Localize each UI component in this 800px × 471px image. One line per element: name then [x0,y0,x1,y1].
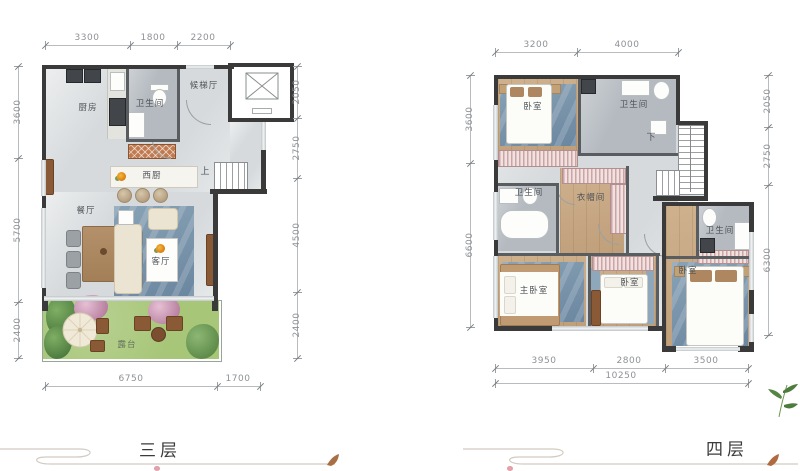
partition [556,183,559,253]
dim-label: 2050 [292,70,302,114]
room-label-master-bedroom: 主卧室 [512,286,556,297]
shower-column [581,79,596,94]
washer [700,238,715,253]
wall [749,202,754,232]
partition [578,153,678,156]
floor4-title: 四层 [687,435,767,460]
bath-vanity [621,80,650,96]
sofa [114,224,142,294]
dim-label: 2750 [763,134,773,178]
blossom-decoration [507,466,513,471]
elevator-wall [228,63,294,67]
window [493,105,498,160]
room-label-bathroom-top: 卫生间 [612,100,656,111]
room-label-bedroom-top: 卧室 [511,102,555,113]
dim-label: 3200 [514,40,558,50]
wall [704,121,708,201]
dim-label: 3300 [65,33,109,43]
room-label-bedroom-mid: 卧室 [608,278,652,289]
dim-label: 10250 [599,371,643,381]
flower-icon [117,172,126,181]
pillow [510,87,524,97]
wardrobe [592,256,654,271]
dim-label: 2750 [292,126,302,170]
dim-label: 4000 [605,40,649,50]
sideboard [45,159,54,195]
lounge-chair [96,318,109,334]
room-label-kitchen: 厨房 [66,103,110,114]
wall [738,346,754,352]
chair [66,272,81,289]
patio-chair [134,316,151,331]
window [41,160,46,196]
nightstand [551,84,561,94]
toilet [653,81,670,100]
chair [66,230,81,247]
dim-label: 2200 [181,33,225,43]
dresser [591,290,601,326]
room-label-bathroom-mid: 卫生间 [507,188,551,199]
wall [662,346,676,352]
dim-label: 5700 [13,208,23,252]
partition [496,253,660,256]
blossom-decoration [154,466,160,471]
dim-label: 2050 [763,79,773,123]
table-centerpiece [100,248,107,255]
pillow [504,296,516,314]
dim-label: 3600 [465,97,475,141]
dim-label: 2800 [607,356,651,366]
floorplan-canvas: 厨房 卫生间 候梯厅 上 西厨 餐厅 [0,0,800,471]
wall [676,75,680,125]
dim-label: 1800 [131,33,175,43]
room-label-living: 客厅 [139,257,183,268]
stool [135,188,150,203]
dim-label: 3950 [522,356,566,366]
patio-chair [166,316,183,331]
dim-label: 3600 [13,90,23,134]
window [676,347,740,351]
elevator-door [252,108,272,114]
window [749,232,754,290]
wall [210,189,267,194]
partition [496,183,558,186]
lounge-chair [90,340,105,352]
wall [42,65,46,160]
room-label-bathroom: 卫生间 [128,99,172,110]
dim-label: 4500 [292,213,302,257]
wall [494,326,552,331]
partition [588,253,591,328]
leaf-icon [327,454,339,466]
wall [494,75,498,105]
dim-label: 1700 [216,374,260,384]
stair-rail [690,126,691,192]
partition [626,166,629,255]
kitchen-appliance [66,69,83,83]
window [186,65,214,69]
elevator-x-icon [245,72,279,100]
dimension-line [495,52,678,53]
armchair [148,208,178,230]
flower-icon [156,244,165,253]
partition [656,253,659,328]
kitchen-cooktop [109,98,126,126]
floor3-title: 三层 [120,436,200,461]
patio-table [151,327,166,342]
room-label-closet: 衣帽间 [569,193,613,204]
bamboo-icon [763,381,800,419]
dim-label: 6600 [465,223,475,267]
room-label-terrace: 露台 [105,340,149,351]
bath-vanity [128,112,145,138]
wall [213,192,218,298]
room-label-bathroom-right: 卫生间 [698,226,742,237]
pillow [715,270,737,282]
stool [117,188,132,203]
stair-up-label: 上 [197,164,213,177]
window [493,192,498,240]
dimension-line [45,45,230,46]
dim-label: 3500 [684,356,728,366]
window [493,256,498,318]
terrace-sliding-door [44,296,214,301]
elevator-wall [228,63,232,122]
window [749,314,754,342]
stairs [656,170,680,196]
kitchen-sink [110,72,125,91]
partition [177,68,180,140]
bathtub [500,210,549,239]
chair [66,251,81,268]
stair-down-label: 下 [643,130,659,143]
dim-label: 6300 [763,238,773,282]
wall [261,150,266,192]
window [41,208,46,288]
wall [42,196,46,208]
stairs [678,125,706,195]
room-label-elevator-hall: 候梯厅 [182,81,226,92]
wardrobe [562,168,626,184]
wall [494,160,498,192]
wall [494,75,680,79]
side-table [118,210,134,225]
room-label-west-kitchen: 西厨 [130,171,174,182]
wall [749,290,754,314]
dim-label: 2400 [13,308,23,352]
dimension-line [495,368,748,369]
window [552,326,648,331]
dimension-line [45,386,260,387]
wall [653,196,708,201]
dimension-line [495,383,748,384]
partition [578,77,581,155]
room-label-dining: 餐厅 [64,206,108,217]
stairs [214,162,248,191]
room-label-bedroom-right: 卧室 [666,266,710,277]
window [261,122,266,150]
wall [494,240,498,256]
wall [662,202,702,206]
pillow [528,87,542,97]
kitchen-appliance [84,69,101,83]
partition [126,139,180,142]
toilet [702,208,717,227]
stool [153,188,168,203]
wall [698,202,754,206]
dim-label: 2400 [292,303,302,347]
dim-label: 6750 [109,374,153,384]
wardrobe [498,150,578,167]
partition [664,256,750,259]
